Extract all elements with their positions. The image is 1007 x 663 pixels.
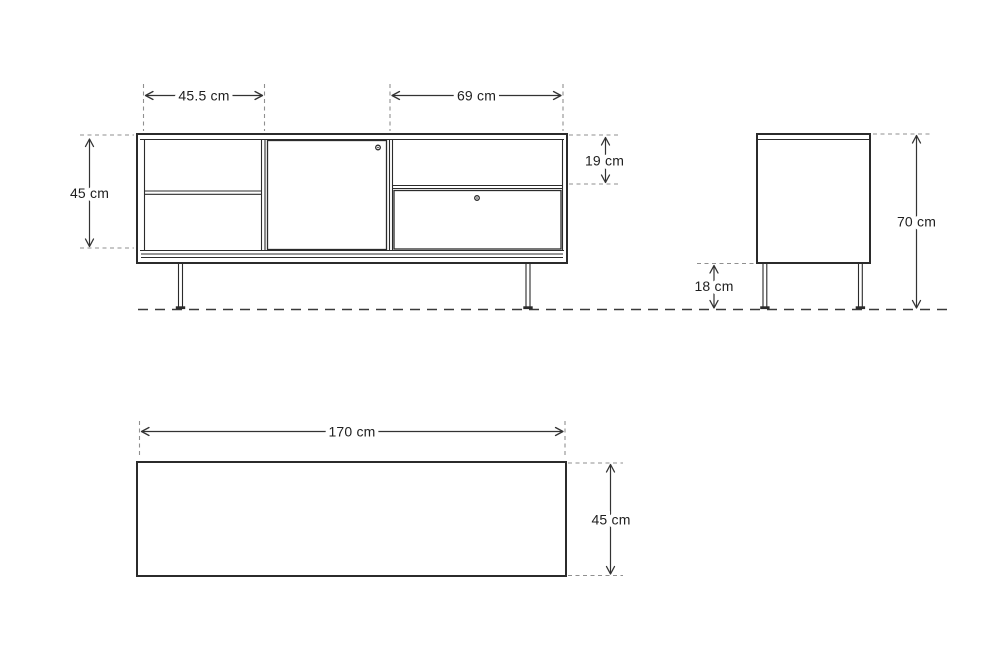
top-view-outline bbox=[137, 462, 566, 576]
dim-leg-height: 18 cm bbox=[694, 264, 754, 309]
front-inner-frame bbox=[140, 140, 564, 251]
front-door bbox=[268, 141, 387, 250]
leg-foot bbox=[523, 306, 532, 309]
leg-foot bbox=[176, 306, 185, 309]
front-drawer-section bbox=[390, 140, 563, 251]
side-body-outline bbox=[757, 134, 870, 263]
door-panel bbox=[268, 141, 387, 250]
dim-front-right-width: 69 cm bbox=[390, 84, 563, 131]
dim-top-width: 170 cm bbox=[140, 421, 566, 458]
side-legs bbox=[760, 263, 865, 309]
leg-foot bbox=[856, 306, 865, 309]
diagram-canvas: 45.5 cm 69 cm 45 cm 19 cm 18 cm bbox=[0, 0, 1007, 663]
side-view bbox=[757, 134, 870, 309]
front-legs bbox=[176, 263, 533, 309]
dim-overall-height-label: 70 cm bbox=[897, 214, 936, 230]
dim-front-left-width: 45.5 cm bbox=[144, 84, 265, 131]
front-bottom-rail bbox=[141, 254, 563, 258]
front-view bbox=[137, 134, 567, 309]
dim-leg-height-label: 18 cm bbox=[694, 278, 733, 294]
dim-overall-height: 70 cm bbox=[873, 134, 936, 308]
top-view bbox=[137, 462, 566, 576]
dim-front-left-width-label: 45.5 cm bbox=[178, 88, 229, 104]
dim-front-height-label: 45 cm bbox=[70, 185, 109, 201]
dim-top-width-label: 170 cm bbox=[328, 424, 375, 440]
dim-top-depth-label: 45 cm bbox=[591, 512, 630, 528]
dim-drawer-height: 19 cm bbox=[569, 135, 624, 184]
drawer-front bbox=[394, 191, 561, 250]
dim-front-height: 45 cm bbox=[70, 135, 134, 248]
front-open-shelf-section bbox=[145, 140, 266, 251]
front-cabinet-outline bbox=[137, 134, 567, 263]
leg-foot bbox=[760, 306, 769, 309]
dim-front-right-width-label: 69 cm bbox=[457, 88, 496, 104]
furniture-dimension-diagram: 45.5 cm 69 cm 45 cm 19 cm 18 cm bbox=[0, 0, 1007, 663]
dim-drawer-height-label: 19 cm bbox=[585, 153, 624, 169]
dim-top-depth: 45 cm bbox=[568, 463, 631, 576]
